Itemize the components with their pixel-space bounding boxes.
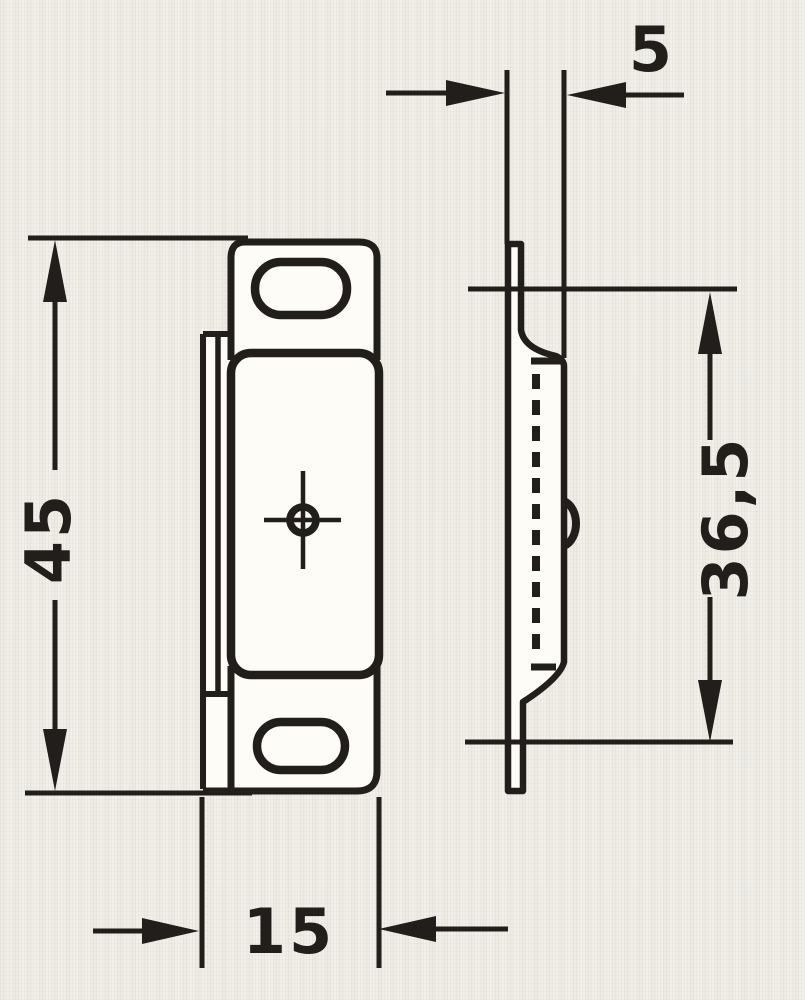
arrowhead-right-icon xyxy=(446,80,505,106)
dimension-width: 15 xyxy=(93,797,508,968)
front-view xyxy=(203,242,379,791)
arrowhead-up-icon xyxy=(43,240,67,302)
arrowhead-down-icon xyxy=(43,729,67,791)
arrowhead-left-icon xyxy=(379,916,436,942)
dim-label-depth: 5 xyxy=(629,13,675,86)
technical-drawing: 45 36,5 5 15 xyxy=(0,0,805,1000)
arrowhead-left-icon xyxy=(567,82,626,108)
dimension-depth: 5 xyxy=(386,13,684,358)
arrowhead-up-icon xyxy=(698,292,722,354)
arrowhead-right-icon xyxy=(142,918,199,944)
arrowhead-down-icon xyxy=(698,680,722,742)
dim-label-hole-spacing: 36,5 xyxy=(689,436,762,601)
dim-label-height: 45 xyxy=(12,492,85,584)
dim-label-width: 15 xyxy=(243,895,335,968)
